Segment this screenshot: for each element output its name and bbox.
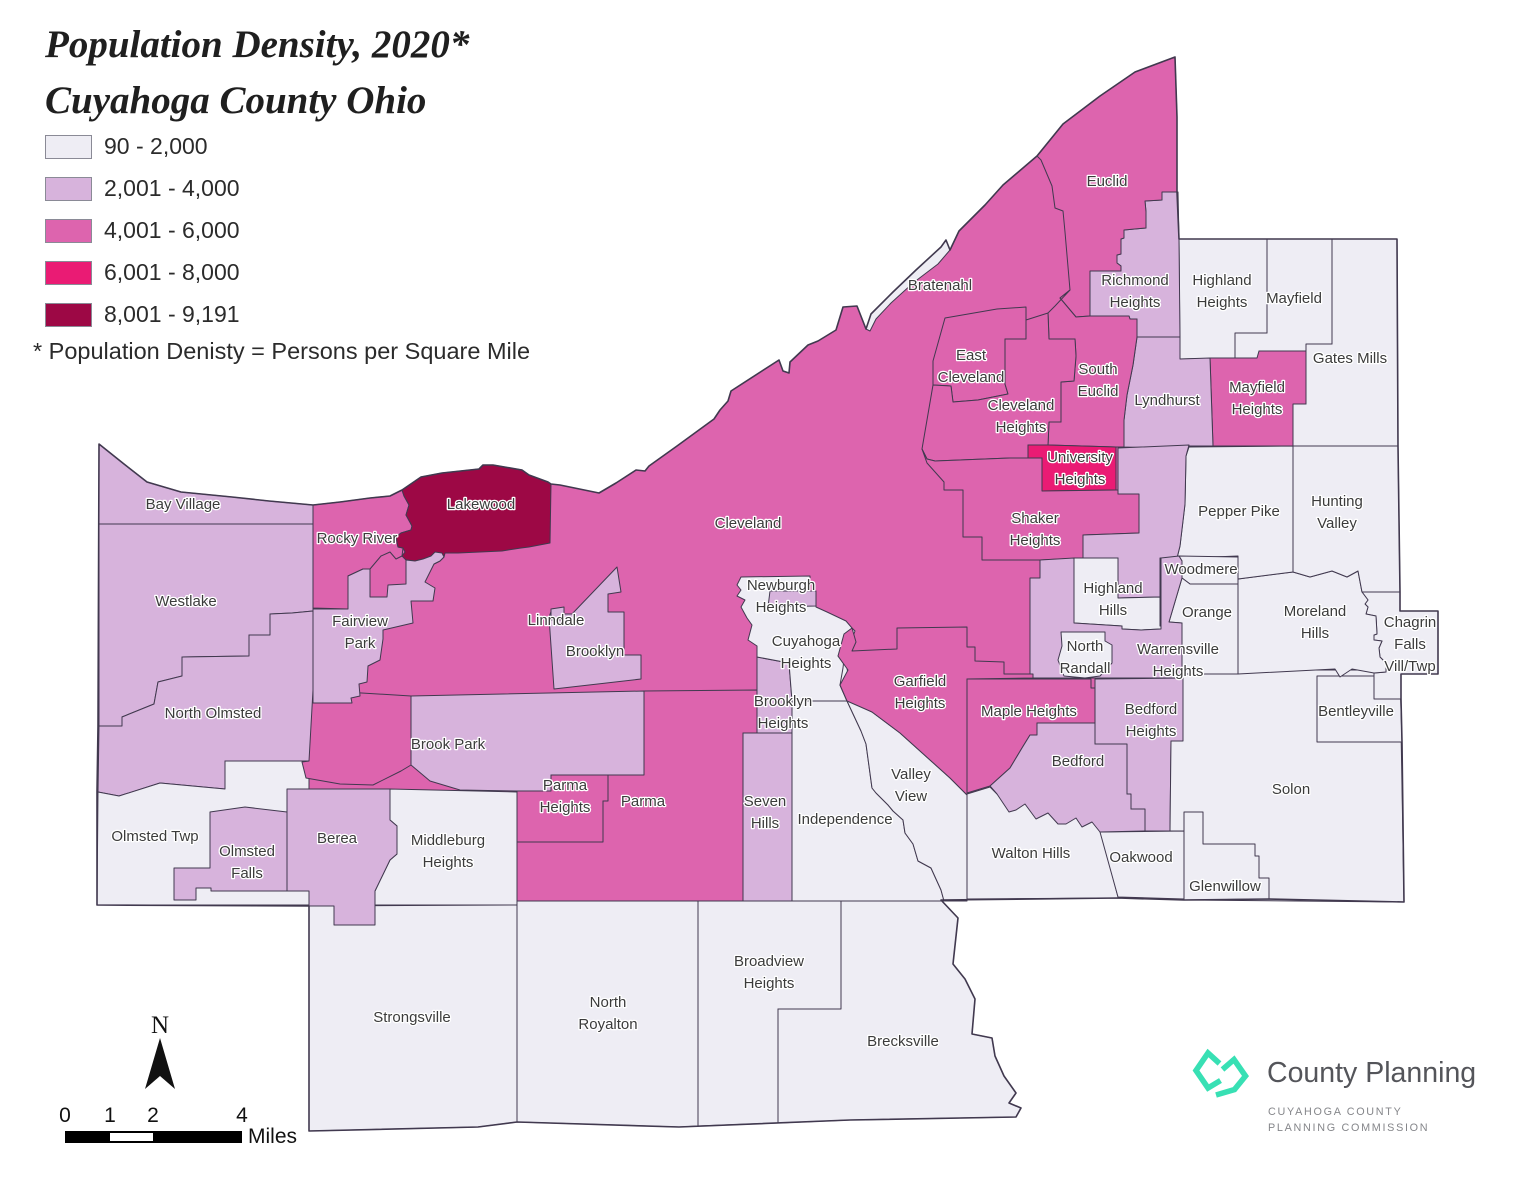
svg-text:Maple Heights: Maple Heights: [981, 703, 1077, 720]
svg-text:Pepper Pike: Pepper Pike: [1198, 503, 1280, 520]
svg-text:PLANNING COMMISSION: PLANNING COMMISSION: [1268, 1122, 1429, 1134]
svg-text:Oakwood: Oakwood: [1109, 849, 1172, 866]
svg-text:2: 2: [147, 1104, 159, 1127]
svg-text:0: 0: [59, 1104, 71, 1127]
svg-text:Walton Hills: Walton Hills: [992, 845, 1071, 862]
svg-text:Miles: Miles: [248, 1125, 297, 1148]
svg-text:Brooklyn: Brooklyn: [566, 643, 624, 660]
svg-text:Independence: Independence: [797, 811, 892, 828]
svg-text:Euclid: Euclid: [1087, 173, 1128, 190]
svg-text:Gates Mills: Gates Mills: [1313, 350, 1387, 367]
svg-text:Bratenahl: Bratenahl: [908, 277, 972, 294]
svg-text:Lakewood: Lakewood: [447, 496, 515, 513]
svg-text:Parma: Parma: [621, 793, 666, 810]
svg-text:N: N: [151, 1012, 169, 1039]
svg-text:Bentleyville: Bentleyville: [1318, 703, 1394, 720]
svg-text:CUYAHOGA COUNTY: CUYAHOGA COUNTY: [1268, 1106, 1402, 1118]
svg-text:4: 4: [236, 1104, 248, 1127]
svg-text:County Planning: County Planning: [1267, 1057, 1476, 1089]
svg-text:Woodmere: Woodmere: [1164, 561, 1237, 578]
svg-text:Linndale: Linndale: [528, 612, 585, 629]
svg-text:Brook Park: Brook Park: [411, 736, 486, 753]
svg-text:Orange: Orange: [1182, 604, 1232, 621]
svg-text:Glenwillow: Glenwillow: [1189, 878, 1261, 895]
svg-text:Mayfield: Mayfield: [1266, 290, 1322, 307]
svg-text:Solon: Solon: [1272, 781, 1310, 798]
svg-text:Lyndhurst: Lyndhurst: [1134, 392, 1200, 409]
svg-text:Cleveland: Cleveland: [715, 515, 782, 532]
svg-text:Bedford: Bedford: [1052, 753, 1105, 770]
svg-text:Brecksville: Brecksville: [867, 1033, 939, 1050]
svg-text:1: 1: [104, 1104, 116, 1127]
